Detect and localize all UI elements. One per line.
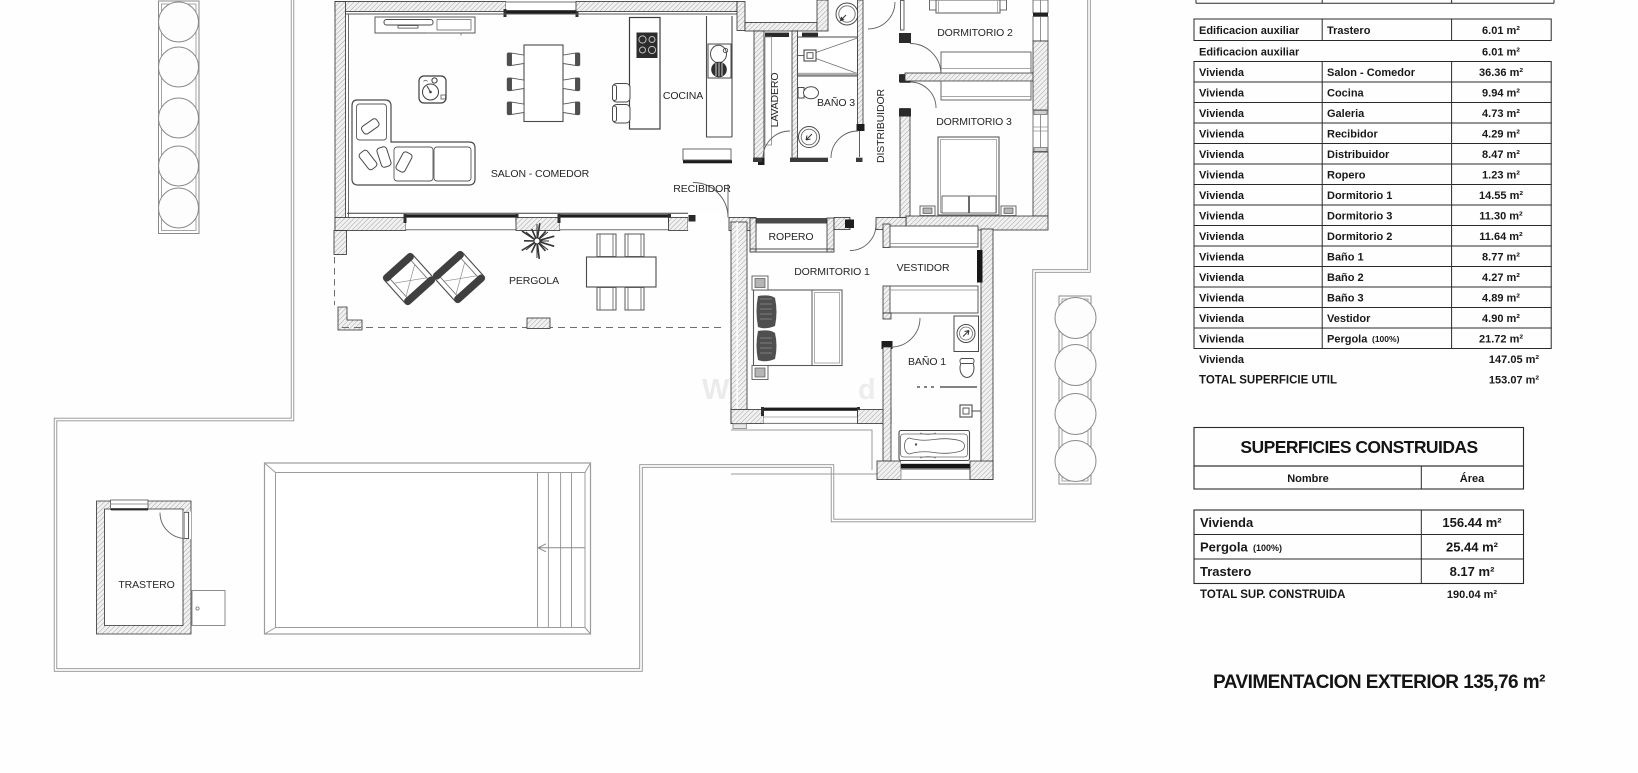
svg-text:BAÑO 1: BAÑO 1 — [908, 355, 946, 368]
svg-text:36.36 m²: 36.36 m² — [1479, 67, 1523, 79]
svg-text:LAVADERO: LAVADERO — [769, 73, 781, 128]
svg-text:4.90 m²: 4.90 m² — [1482, 313, 1520, 325]
svg-text:21.72 m²: 21.72 m² — [1479, 334, 1523, 346]
svg-text:BAÑO 3: BAÑO 3 — [817, 96, 855, 109]
svg-text:Vivienda: Vivienda — [1199, 170, 1245, 182]
svg-text:Vivienda: Vivienda — [1199, 313, 1245, 325]
svg-text:Distribuidor: Distribuidor — [1327, 149, 1390, 161]
svg-text:Nombre: Nombre — [1287, 473, 1329, 485]
svg-text:9.94 m²: 9.94 m² — [1482, 88, 1520, 100]
svg-text:1.23 m²: 1.23 m² — [1482, 170, 1520, 182]
svg-text:PERGOLA: PERGOLA — [509, 275, 559, 287]
svg-text:TOTAL SUPERFICIE UTIL: TOTAL SUPERFICIE UTIL — [1199, 375, 1337, 387]
svg-text:Vestidor: Vestidor — [1327, 313, 1371, 325]
svg-text:Recibidor: Recibidor — [1327, 129, 1378, 141]
svg-text:14.55 m²: 14.55 m² — [1479, 190, 1523, 202]
svg-text:11.64 m²: 11.64 m² — [1479, 231, 1523, 243]
svg-text:Vivienda: Vivienda — [1199, 88, 1245, 100]
svg-text:d: d — [858, 374, 876, 406]
svg-text:190.04 m²: 190.04 m² — [1447, 589, 1497, 601]
svg-text:Vivienda: Vivienda — [1199, 129, 1245, 141]
svg-text:11.30 m²: 11.30 m² — [1479, 211, 1523, 223]
svg-text:Trastero: Trastero — [1327, 25, 1371, 37]
svg-text:Trastero: Trastero — [1200, 564, 1251, 579]
svg-text:Vivienda: Vivienda — [1199, 252, 1245, 264]
svg-text:Cocina: Cocina — [1327, 88, 1365, 100]
svg-text:Vivienda: Vivienda — [1199, 149, 1245, 161]
svg-text:TOTAL SUP. CONSTRUIDA: TOTAL SUP. CONSTRUIDA — [1200, 589, 1345, 601]
svg-text:8.77 m²: 8.77 m² — [1482, 252, 1520, 264]
svg-text:Vivienda: Vivienda — [1199, 272, 1245, 284]
svg-text:4.27 m²: 4.27 m² — [1482, 272, 1520, 284]
svg-text:Dormitorio 1: Dormitorio 1 — [1327, 190, 1392, 202]
svg-text:25.44 m²: 25.44 m² — [1446, 540, 1499, 555]
svg-text:Vivienda: Vivienda — [1199, 67, 1245, 79]
svg-text:SUPERFICIES CONSTRUIDAS: SUPERFICIES CONSTRUIDAS — [1240, 437, 1477, 457]
svg-text:Baño 2: Baño 2 — [1327, 272, 1364, 284]
svg-text:(100%): (100%) — [1372, 334, 1400, 344]
svg-text:SALON - COMEDOR: SALON - COMEDOR — [491, 168, 590, 180]
svg-text:DORMITORIO 3: DORMITORIO 3 — [936, 116, 1012, 128]
svg-text:153.07 m²: 153.07 m² — [1489, 375, 1539, 387]
svg-text:COCINA: COCINA — [663, 90, 703, 102]
svg-text:Salon - Comedor: Salon - Comedor — [1327, 67, 1416, 79]
svg-text:4.89 m²: 4.89 m² — [1482, 293, 1520, 305]
svg-text:Vivienda: Vivienda — [1199, 190, 1245, 202]
svg-text:Dormitorio 3: Dormitorio 3 — [1327, 211, 1392, 223]
svg-text:Vivienda: Vivienda — [1199, 108, 1245, 120]
svg-text:Vivienda: Vivienda — [1199, 293, 1245, 305]
svg-text:8.17 m²: 8.17 m² — [1450, 564, 1495, 579]
svg-text:Vivienda: Vivienda — [1200, 515, 1254, 530]
svg-text:TRASTERO: TRASTERO — [118, 579, 174, 591]
svg-text:156.44 m²: 156.44 m² — [1442, 515, 1502, 530]
svg-text:Pergola: Pergola — [1327, 334, 1368, 346]
svg-text:DORMITORIO 2: DORMITORIO 2 — [937, 27, 1013, 39]
svg-text:8.47 m²: 8.47 m² — [1482, 149, 1520, 161]
svg-text:Ropero: Ropero — [1327, 170, 1366, 182]
svg-text:Baño 1: Baño 1 — [1327, 252, 1364, 264]
svg-text:Vivienda: Vivienda — [1199, 334, 1245, 346]
svg-text:Edificacion auxiliar: Edificacion auxiliar — [1199, 47, 1300, 59]
svg-text:Vivienda: Vivienda — [1199, 354, 1245, 366]
svg-text:Galeria: Galeria — [1327, 108, 1365, 120]
svg-text:Vivienda: Vivienda — [1199, 211, 1245, 223]
svg-text:DORMITORIO 1: DORMITORIO 1 — [794, 266, 870, 278]
svg-text:DISTRIBUIDOR: DISTRIBUIDOR — [875, 88, 887, 163]
svg-text:Vivienda: Vivienda — [1199, 231, 1245, 243]
svg-text:147.05 m²: 147.05 m² — [1489, 354, 1539, 366]
svg-text:6.01 m²: 6.01 m² — [1482, 25, 1520, 37]
svg-text:4.29 m²: 4.29 m² — [1482, 129, 1520, 141]
svg-text:4.73 m²: 4.73 m² — [1482, 108, 1520, 120]
svg-text:(100%): (100%) — [1253, 543, 1282, 553]
svg-text:Edificacion auxiliar: Edificacion auxiliar — [1199, 25, 1300, 37]
svg-text:PAVIMENTACION EXTERIOR 135,76: PAVIMENTACION EXTERIOR 135,76 m² — [1213, 672, 1545, 693]
svg-text:Dormitorio 2: Dormitorio 2 — [1327, 231, 1392, 243]
svg-text:RECIBIDOR: RECIBIDOR — [673, 183, 731, 195]
svg-text:Baño 3: Baño 3 — [1327, 293, 1364, 305]
svg-text:Área: Área — [1460, 472, 1485, 485]
svg-text:ROPERO: ROPERO — [769, 231, 814, 243]
svg-text:6.01 m²: 6.01 m² — [1482, 47, 1520, 59]
svg-text:Pergola: Pergola — [1200, 540, 1248, 555]
svg-text:W: W — [702, 374, 734, 406]
svg-text:VESTIDOR: VESTIDOR — [897, 262, 950, 274]
